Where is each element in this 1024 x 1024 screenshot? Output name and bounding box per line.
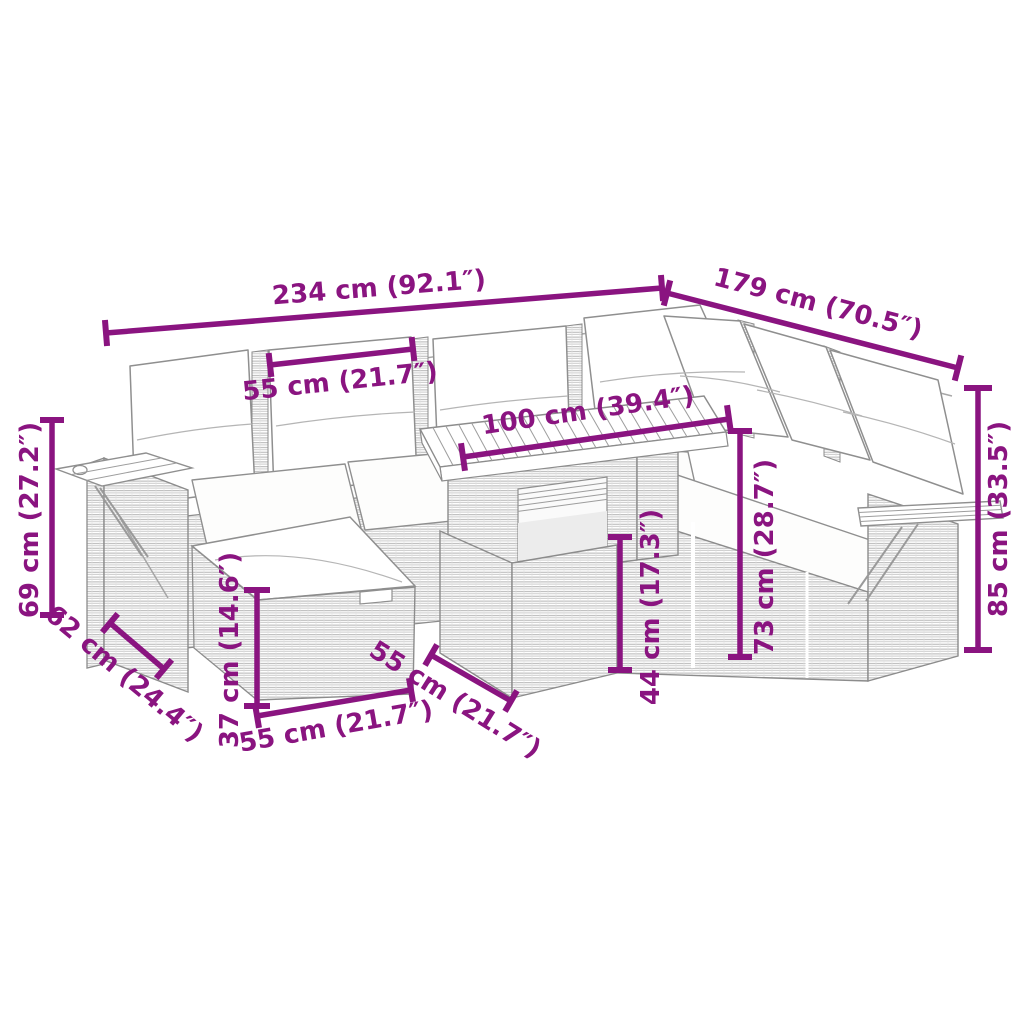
dimension-label: 44 cm (17.3″): [636, 509, 666, 705]
dimension-label: 69 cm (27.2″): [15, 422, 45, 618]
ottoman-handle: [360, 589, 392, 604]
table-base-front: [512, 545, 617, 698]
dimension-label: 73 cm (28.7″): [750, 459, 780, 655]
diagram-canvas: 234 cm (92.1″)179 cm (70.5″)55 cm (21.7″…: [0, 0, 1024, 1024]
product-dimension-diagram: 234 cm (92.1″)179 cm (70.5″)55 cm (21.7″…: [0, 0, 1024, 1024]
dimension-armrest-height: 69 cm (27.2″): [15, 420, 64, 618]
dimension-label: 37 cm (14.6″): [215, 552, 245, 748]
dimension-label: 85 cm (33.5″): [984, 421, 1014, 617]
